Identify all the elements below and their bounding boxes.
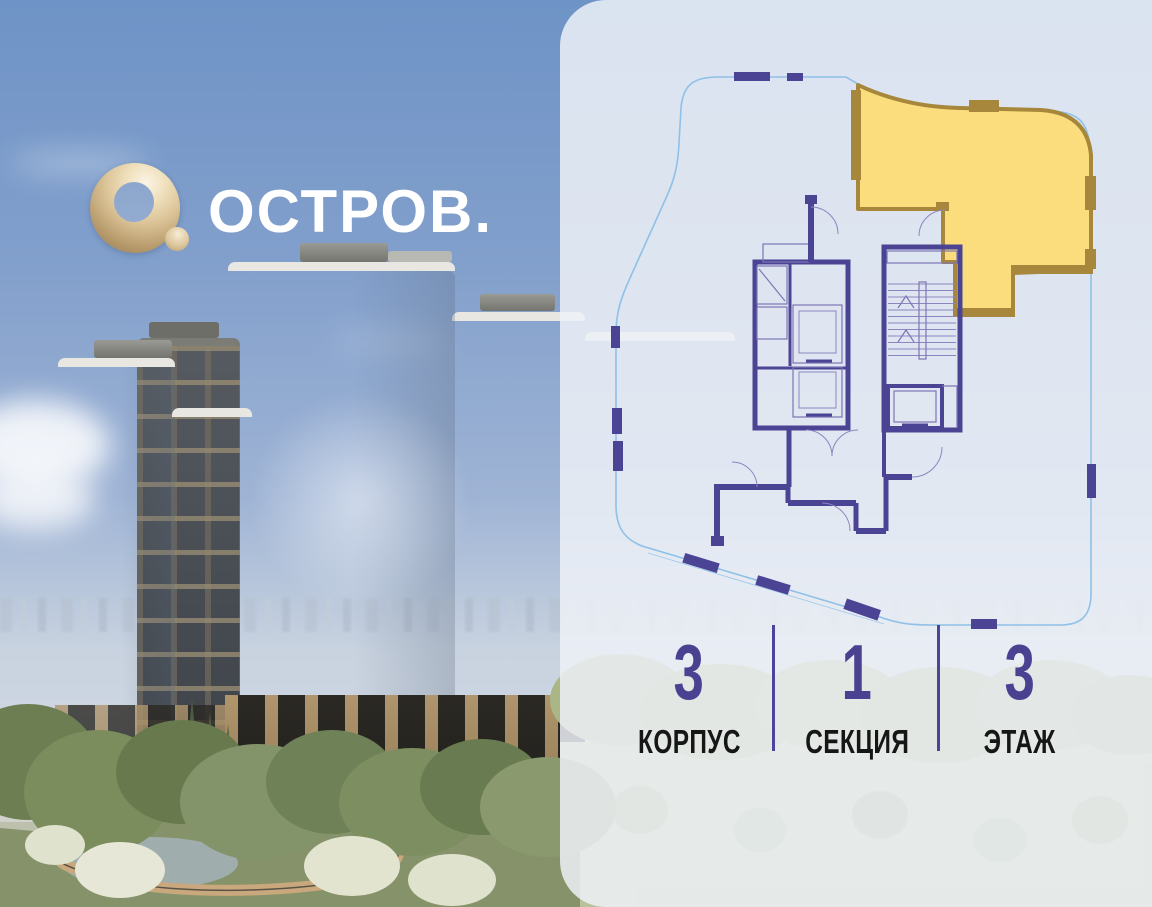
stat-section-value: 1 xyxy=(842,633,872,711)
selected-apartment-shape[interactable] xyxy=(851,85,1096,317)
elevator-lower xyxy=(888,386,957,428)
brand-name: ОСТРОВ. xyxy=(208,177,493,246)
stat-floor-value: 3 xyxy=(1005,633,1035,711)
unit-stats: 3 КОРПУС 1 СЕКЦИЯ 3 ЭТАЖ xyxy=(560,615,1152,775)
stat-building-value: 3 xyxy=(674,633,704,711)
stat-section-label: СЕКЦИЯ xyxy=(805,723,909,761)
real-estate-hero: ОСТРОВ. xyxy=(0,0,1152,907)
elevator-left xyxy=(793,305,842,417)
logo-dot-icon xyxy=(165,227,189,251)
stat-building: 3 КОРПУС xyxy=(604,633,774,761)
stat-floor: 3 ЭТАЖ xyxy=(935,633,1105,761)
brand-logo: ОСТРОВ. xyxy=(90,163,510,273)
stat-building-label: КОРПУС xyxy=(638,723,741,761)
logo-ring-hole xyxy=(114,182,154,222)
stat-floor-label: ЭТАЖ xyxy=(984,723,1056,761)
stairwell xyxy=(884,247,960,430)
stat-section: 1 СЕКЦИЯ xyxy=(772,633,942,761)
floorplan-panel: 3 КОРПУС 1 СЕКЦИЯ 3 ЭТАЖ xyxy=(560,0,1152,907)
core-walls xyxy=(711,195,960,546)
